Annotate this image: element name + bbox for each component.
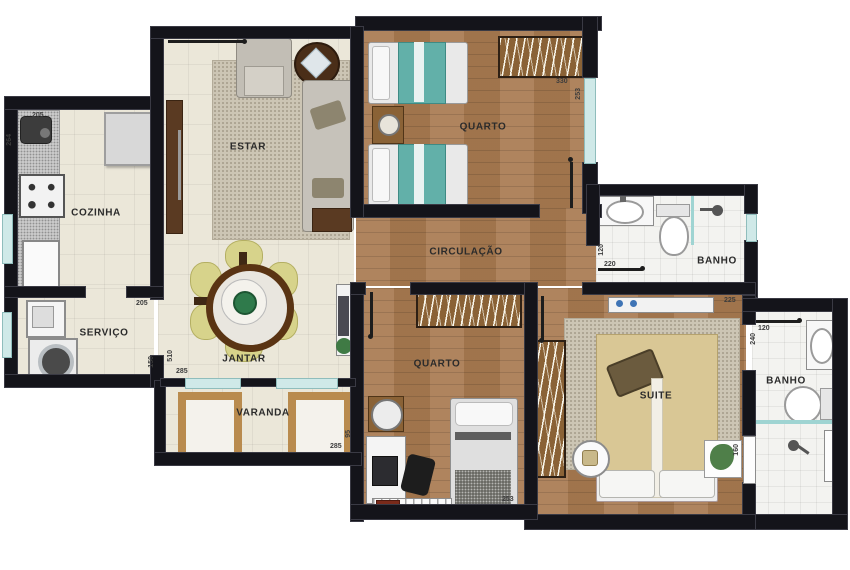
varanda-chair-left [178, 392, 242, 460]
wall-estar-top [150, 26, 362, 39]
dim-suite-h: 160 [733, 444, 740, 456]
dim-quarto1-w: 330 [556, 78, 568, 85]
bed2-stripe [414, 144, 424, 204]
servico-label: SERVIÇO [79, 328, 128, 339]
quarto2-label: QUARTO [414, 359, 461, 370]
servico-window [2, 312, 12, 358]
dim-varanda-w: 285 [330, 443, 342, 450]
dim-banho1-h: 120 [598, 244, 605, 256]
kitchen-window [2, 214, 13, 264]
entry-door-hinge [242, 39, 247, 44]
bed2-pillow [372, 148, 390, 202]
sofa-end-table [312, 208, 352, 232]
dim-servico-w: 205 [136, 300, 148, 307]
sofa-pillow2 [312, 178, 344, 198]
laundry-tub-basin [32, 306, 54, 328]
banho2-toilet-icon [784, 386, 822, 424]
floor-plan: COZINHA SERVIÇO ESTAR JANTAR VARANDA QUA… [0, 0, 850, 570]
dim-varanda-h: 95 [345, 430, 352, 438]
banho1-sink-icon [606, 200, 644, 224]
estar-label: ESTAR [230, 142, 266, 153]
suite-banho-door-leaf [743, 436, 756, 484]
centerpiece-icon [233, 291, 257, 315]
banho2-door-hinge [797, 318, 802, 323]
wall-banho1-right-a [744, 184, 758, 214]
wall-suite-top [582, 282, 756, 295]
wall-kitchen-servico-b [126, 286, 164, 298]
dresser-knob1 [616, 300, 623, 307]
dim-quarto1-h: 253 [575, 88, 582, 100]
quarto1-label: QUARTO [460, 122, 507, 133]
wall-quarto1-bottom-a [356, 204, 540, 218]
quarto2-door-leaf [370, 292, 373, 336]
wall-quarto1-right-a [582, 16, 598, 78]
banho2-shower-glass [753, 420, 835, 424]
suite-label: SUITE [640, 391, 672, 402]
armchair-seat [244, 66, 284, 96]
wall-quarto1-top [355, 16, 602, 31]
varanda-chair-right [288, 392, 352, 460]
bed1-pillow [372, 46, 390, 100]
kitchen-faucet-icon [40, 128, 50, 138]
kitchen-sink2-icon [22, 240, 60, 288]
wall-servico-bottom [4, 374, 164, 388]
dim-banho2-h: 240 [750, 333, 757, 345]
banho1-toilet-icon [659, 216, 689, 256]
fridge-icon [104, 112, 154, 166]
varanda-label: VARANDA [236, 408, 289, 419]
dresser-knob2 [630, 300, 637, 307]
banho1-shower-glass [691, 195, 694, 245]
suite-pillow1 [599, 470, 655, 498]
banho1-label: BANHO [697, 256, 737, 267]
bed3-pillow [455, 402, 513, 426]
wall-varanda-bottom [154, 452, 362, 466]
varanda-glass-door1 [185, 378, 241, 389]
laptop-icon [372, 456, 398, 486]
cozinha-label: COZINHA [71, 208, 121, 219]
wall-banho1-top [588, 184, 750, 196]
wall-circ-bottom-b [410, 282, 538, 295]
dim-quarto2-w: 253 [502, 496, 514, 503]
varanda-glass-door2 [276, 378, 338, 389]
entry-door-leaf [168, 40, 244, 43]
wall-banho2-left-b [742, 370, 756, 436]
banho2-sink-icon [810, 328, 834, 364]
lamp-icon [378, 114, 400, 136]
tv-icon [178, 130, 181, 200]
circulacao-label: CIRCULAÇÃO [429, 247, 502, 258]
dim-cozinha-h: 264 [6, 134, 13, 146]
quarto1-door-leaf [570, 162, 573, 208]
wall-circ-bottom-a [350, 282, 366, 295]
quarto1-window [584, 78, 596, 164]
dim-jantar-h: 510 [167, 350, 174, 362]
dim-cozinha-w: 205 [32, 112, 44, 119]
wall-banho1-left [586, 184, 600, 246]
bed3-stripe [455, 432, 511, 440]
suite-door-leaf [541, 296, 544, 340]
jantar-label: JANTAR [222, 354, 265, 365]
banho1-window [746, 214, 757, 242]
wardrobe1-icon [498, 36, 588, 78]
bed1-stripe [414, 42, 424, 102]
suite-dresser [608, 297, 714, 313]
wall-estar-right [350, 26, 364, 218]
dim-servico-h: 150 [148, 356, 155, 368]
wall-kitchen-top [4, 96, 162, 110]
wall-quarto2-bottom [350, 504, 538, 520]
sideboard-panel [338, 296, 349, 336]
wall-kitchen-servico-a [4, 286, 86, 298]
table2-icon [371, 399, 403, 431]
wall-banho2-right [832, 298, 848, 530]
dim-jantar-w: 285 [176, 368, 188, 375]
dim-banho1-w: 220 [604, 261, 616, 268]
wall-kitchen-right [150, 26, 164, 300]
banho1-door-hinge [640, 266, 645, 271]
quarto1-door-hinge [568, 157, 573, 162]
quarto2-door-hinge [368, 334, 373, 339]
suite-table-item [582, 450, 598, 466]
banho1-door-leaf [598, 268, 642, 271]
wall-quarto2-left [350, 282, 364, 522]
banho1-shower-head-icon [712, 205, 723, 216]
wall-banho2-bottom [742, 514, 848, 530]
dim-banho2-w: 120 [758, 325, 770, 332]
wall-suite-bottom [524, 514, 756, 530]
suite-door-hinge [539, 338, 544, 343]
banho2-label: BANHO [766, 376, 806, 387]
dim-suite-w: 225 [724, 297, 736, 304]
wall-suite-left [524, 282, 538, 522]
banho2-door-leaf [756, 320, 800, 323]
stove-icon [19, 174, 65, 218]
